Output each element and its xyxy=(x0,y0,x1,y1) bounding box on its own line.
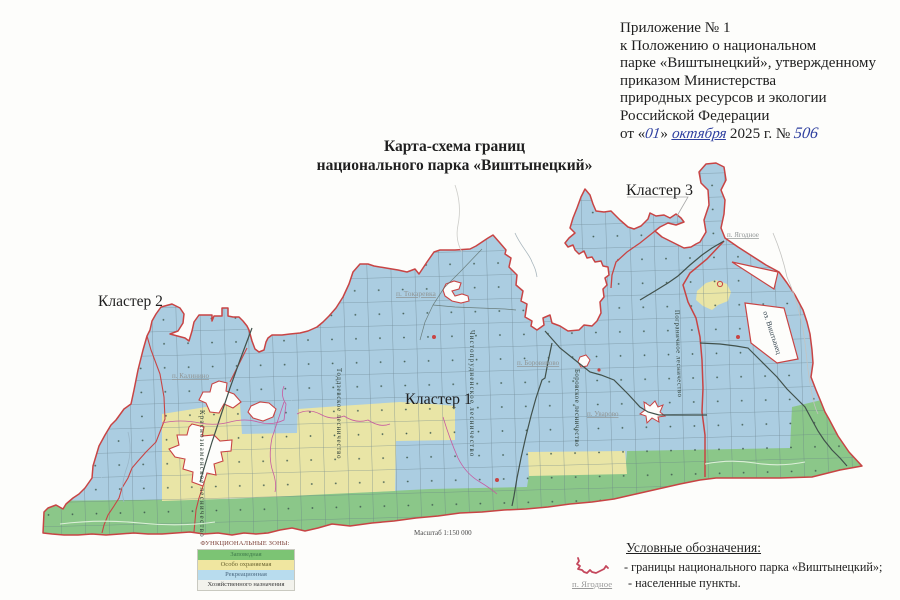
svg-text:п. Калинино: п. Калинино xyxy=(172,372,209,380)
svg-text:Кластер 3: Кластер 3 xyxy=(626,182,693,199)
svg-text:п. Боровиково: п. Боровиково xyxy=(517,359,560,367)
svg-text:п. Уварово: п. Уварово xyxy=(587,410,619,418)
svg-text:Краснознаменское лесничество: Краснознаменское лесничество xyxy=(198,410,205,538)
svg-text:Кластер 2: Кластер 2 xyxy=(98,293,163,310)
svg-text:Кластер 1: Кластер 1 xyxy=(405,391,472,408)
svg-text:п. Ягодное: п. Ягодное xyxy=(727,231,759,239)
svg-text:Чистопрудненское лесничество: Чистопрудненское лесничество xyxy=(468,330,475,458)
svg-text:Тоддзевское лесничество: Тоддзевское лесничество xyxy=(335,368,342,459)
svg-text:Боровское лесничество: Боровское лесничество xyxy=(573,369,580,447)
svg-text:п. Токаревка: п. Токаревка xyxy=(396,289,437,298)
svg-text:Масштаб 1:150 000: Масштаб 1:150 000 xyxy=(414,529,472,537)
